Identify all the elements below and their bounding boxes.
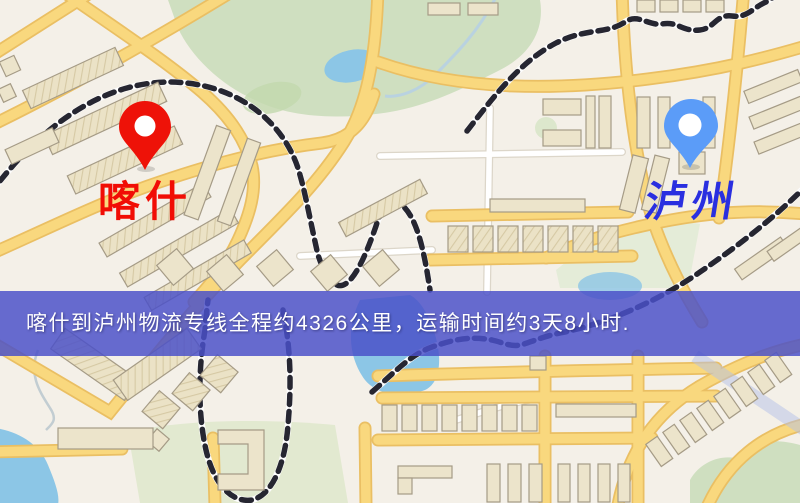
map-image: 喀什 泸州: [0, 0, 800, 503]
destination-pin-hole: [679, 114, 702, 137]
destination-label: 泸州: [641, 178, 742, 225]
origin-pin-hole: [135, 116, 156, 137]
route-info-banner: 喀什到泸州物流专线全程约4326公里，运输时间约3天8小时.: [0, 291, 800, 356]
origin-label: 喀什: [98, 178, 192, 225]
route-info-text: 喀什到泸州物流专线全程约4326公里，运输时间约3天8小时.: [0, 291, 800, 356]
logistics-route-map: 喀什 泸州 喀什到泸州物流专线全程约4326公里，运输时间约3天8小时.: [0, 0, 800, 503]
